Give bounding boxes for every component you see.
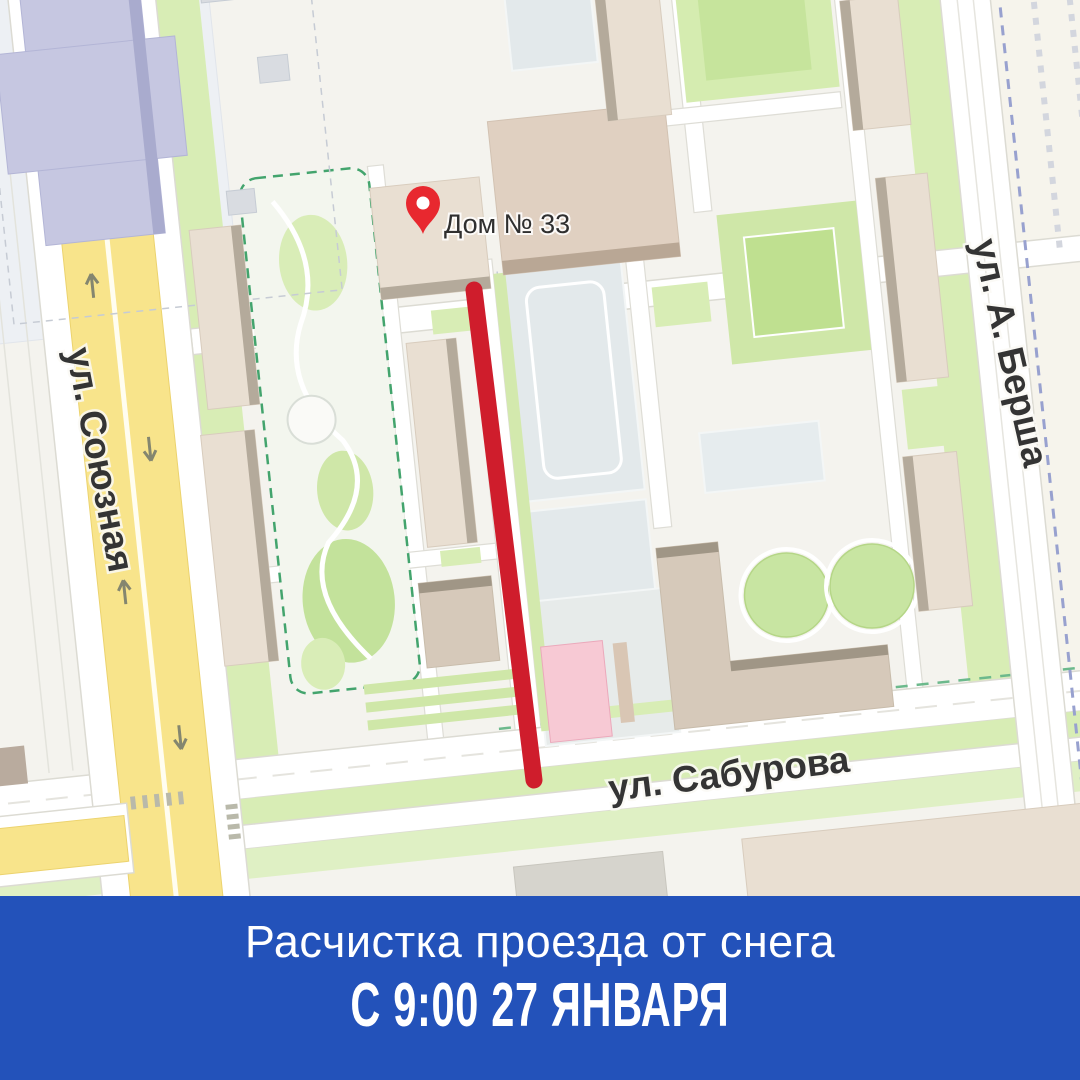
pink-building (541, 641, 613, 743)
announcement-datetime: С 9:00 27 ЯНВАРЯ (350, 970, 729, 1041)
snow-clearing-announcement: Дом № 33 ул. Союзная ул. А. Берша ул. Са… (0, 0, 1080, 1080)
pin-label: Дом № 33 (444, 209, 570, 239)
announcement-banner: Расчистка проезда от снега С 9:00 27 ЯНВ… (0, 896, 1080, 1080)
announcement-title: Расчистка проезда от снега (245, 916, 835, 968)
